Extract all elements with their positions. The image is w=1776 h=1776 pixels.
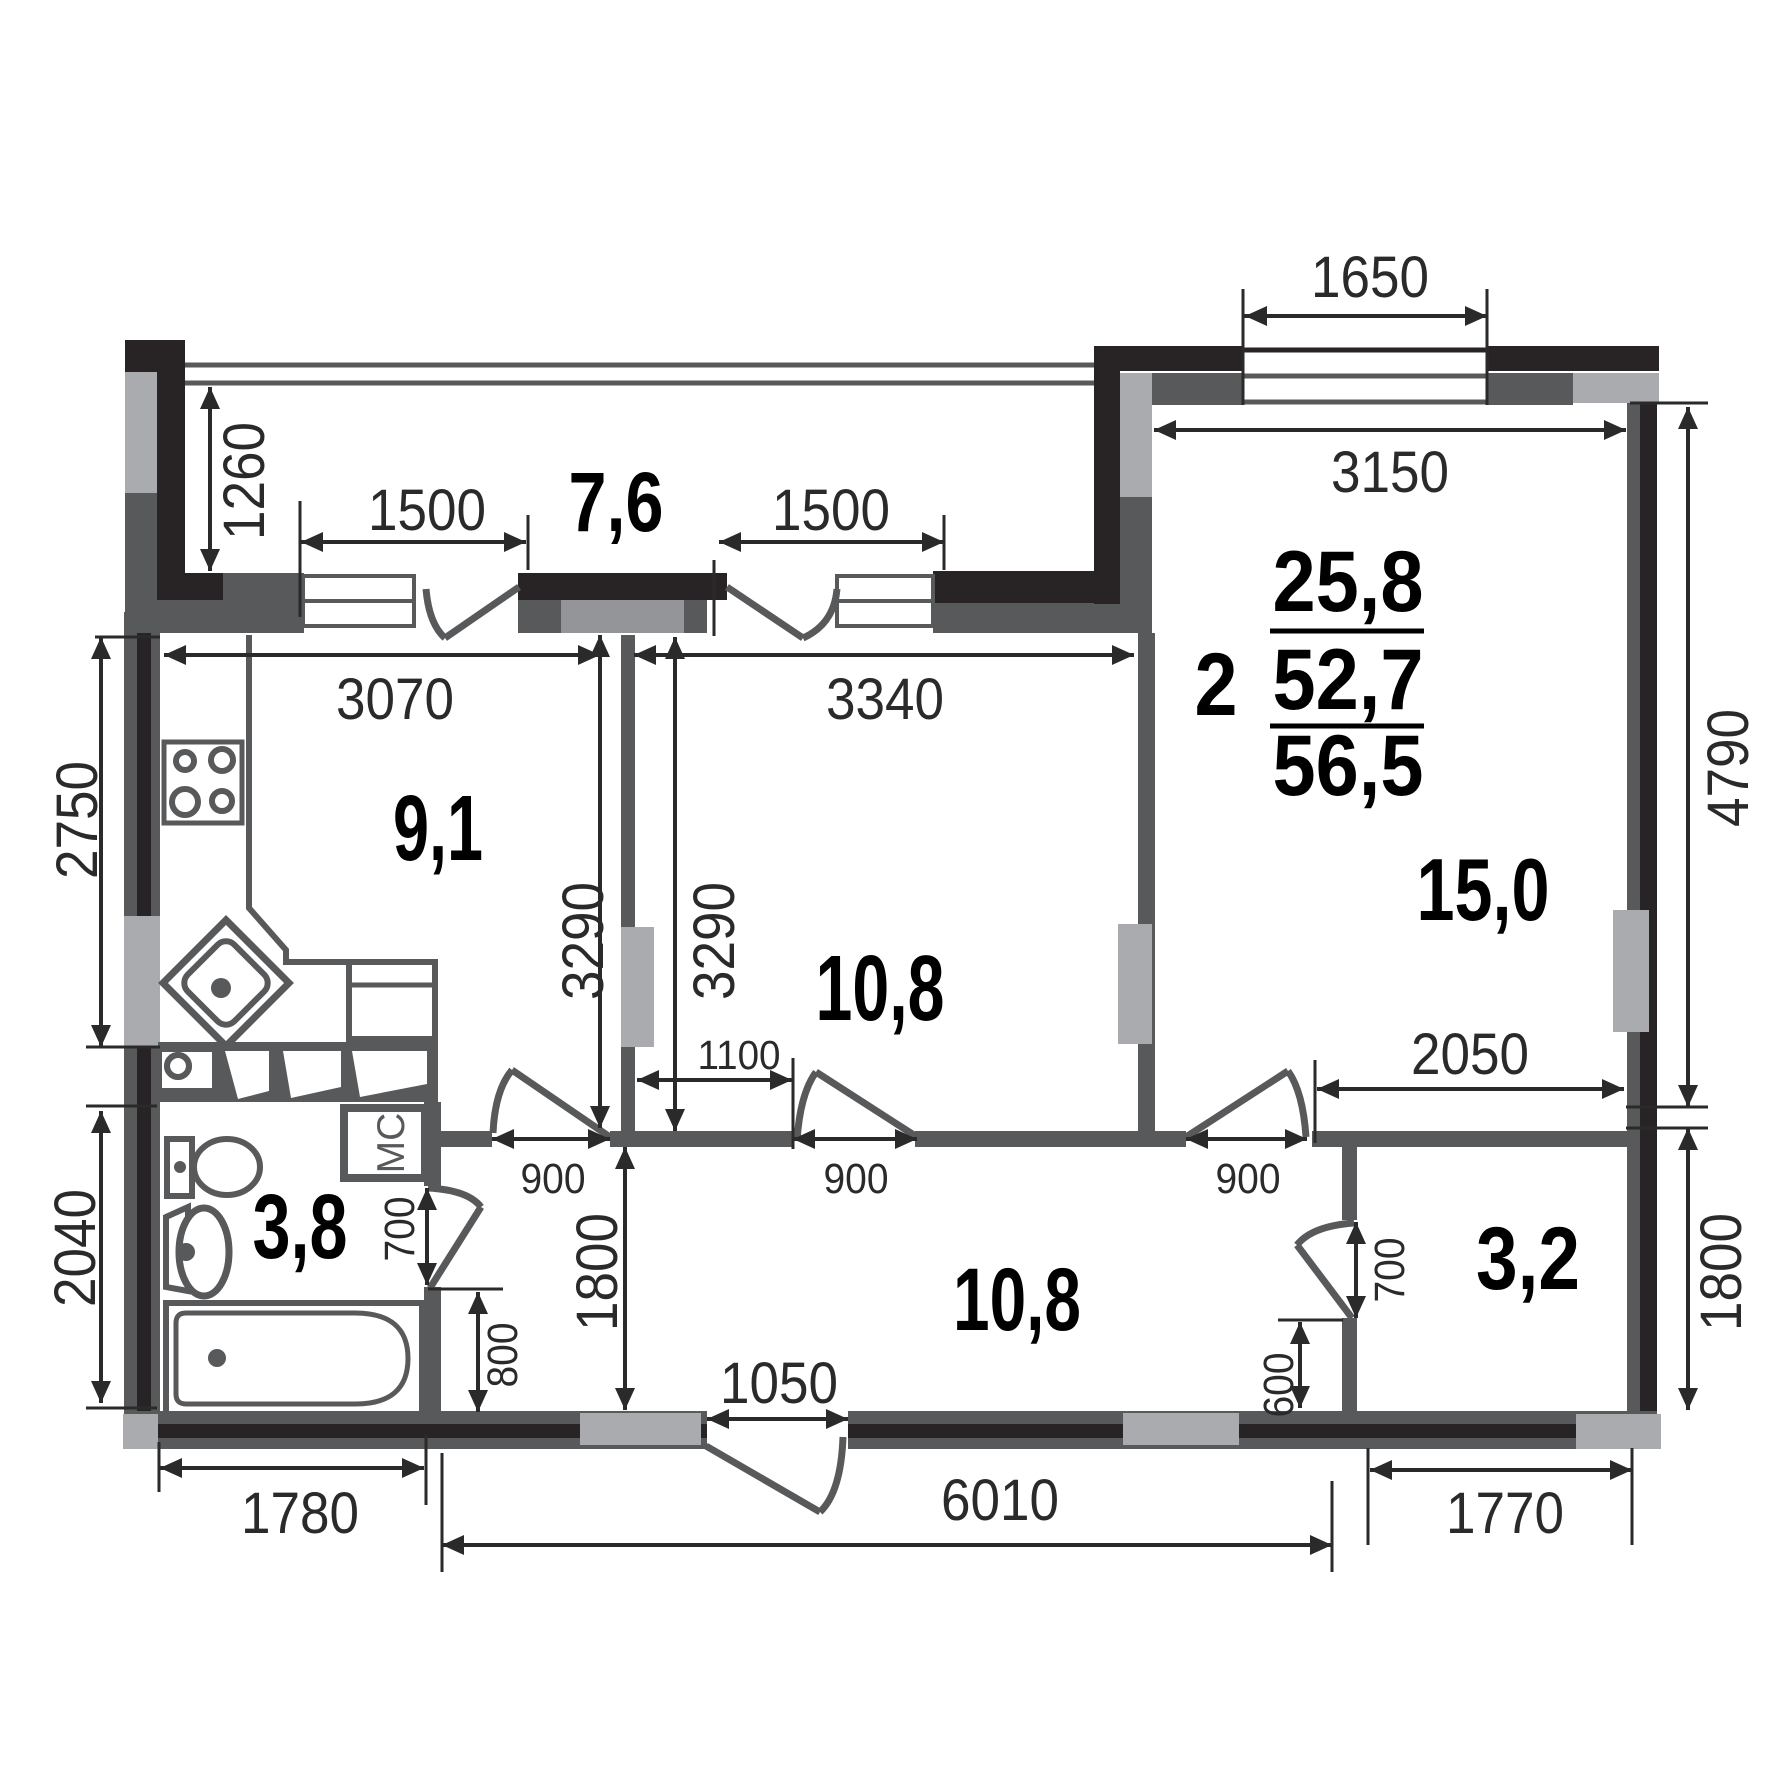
svg-text:56,5: 56,5 (1273, 718, 1424, 814)
svg-text:3070: 3070 (336, 667, 454, 732)
svg-text:900: 900 (1216, 1155, 1281, 1203)
svg-text:3,8: 3,8 (253, 1176, 348, 1278)
svg-text:МС: МС (370, 1113, 413, 1174)
svg-text:25,8: 25,8 (1273, 534, 1424, 630)
svg-text:1800: 1800 (565, 1213, 630, 1331)
svg-text:2050: 2050 (1411, 1022, 1529, 1087)
svg-text:900: 900 (521, 1155, 586, 1203)
svg-text:1500: 1500 (772, 478, 890, 543)
svg-text:1800: 1800 (1689, 1213, 1754, 1331)
svg-text:3290: 3290 (682, 882, 747, 1000)
svg-text:10,8: 10,8 (953, 1249, 1081, 1349)
svg-text:2040: 2040 (43, 1189, 108, 1307)
svg-text:800: 800 (479, 1323, 527, 1388)
svg-text:6010: 6010 (941, 1468, 1059, 1533)
svg-text:9,1: 9,1 (393, 776, 483, 880)
svg-text:1500: 1500 (368, 478, 486, 543)
svg-text:10,8: 10,8 (816, 936, 945, 1040)
svg-text:2750: 2750 (45, 761, 110, 879)
svg-text:1650: 1650 (1311, 245, 1429, 310)
svg-text:3150: 3150 (1331, 440, 1449, 505)
svg-text:900: 900 (824, 1155, 889, 1203)
svg-text:600: 600 (1255, 1353, 1303, 1418)
svg-text:4790: 4790 (1696, 709, 1761, 827)
svg-text:3290: 3290 (551, 882, 616, 1000)
svg-text:3,2: 3,2 (1476, 1208, 1580, 1308)
svg-text:7,6: 7,6 (569, 455, 664, 549)
svg-text:1260: 1260 (212, 422, 277, 540)
svg-text:700: 700 (376, 1197, 424, 1262)
svg-text:700: 700 (1366, 1238, 1414, 1303)
svg-text:3340: 3340 (826, 667, 944, 732)
svg-text:15,0: 15,0 (1417, 840, 1550, 939)
svg-text:1770: 1770 (1446, 1481, 1564, 1546)
svg-text:52,7: 52,7 (1273, 632, 1424, 728)
svg-text:1780: 1780 (241, 1481, 359, 1546)
svg-text:1050: 1050 (720, 1351, 838, 1416)
svg-text:1100: 1100 (698, 1032, 781, 1078)
svg-text:2: 2 (1195, 634, 1238, 734)
